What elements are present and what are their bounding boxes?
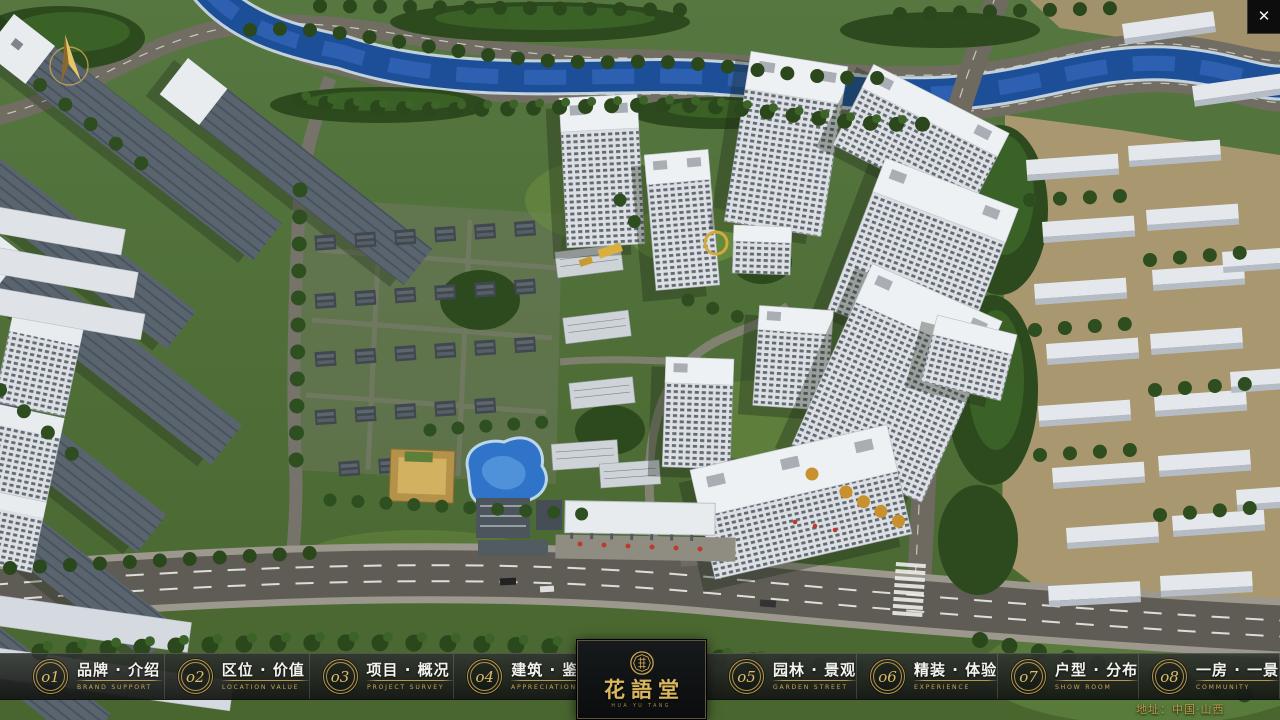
logo-panel[interactable]: 花語堂 HUA YU TANG <box>577 640 706 719</box>
site-plan-3d[interactable] <box>0 0 1280 720</box>
nav-item-floorplans[interactable]: o7 户型 · 分布SHOW ROOM <box>997 654 1138 699</box>
nav-group-right: o5 园林 · 景观GARDEN STREET o6 精装 · 体验EXPERI… <box>702 654 1280 699</box>
nav-label-zh: 一房 · 一景 <box>1196 662 1279 679</box>
compass-icon[interactable] <box>40 26 98 104</box>
nav-number-badge: o7 <box>1011 659 1046 694</box>
nav-label-en: GARDEN STREET <box>773 684 846 691</box>
nav-label-en: PROJECT SURVEY <box>367 684 443 691</box>
nav-label-en: APPRECIATION <box>511 684 584 691</box>
nav-number-badge: o4 <box>467 659 502 694</box>
nav-item-landscape[interactable]: o5 园林 · 景观GARDEN STREET <box>716 654 856 699</box>
gold-rule <box>773 680 856 681</box>
nav-number-badge: o8 <box>1152 659 1187 694</box>
nav-label-zh: 项目 · 概况 <box>367 662 454 679</box>
nav-label-en: EXPERIENCE <box>914 684 987 691</box>
nav-group-left: o1 品牌 · 介绍BRAND SUPPORT o2 区位 · 价值LOCATI… <box>0 654 598 699</box>
nav-number: o6 <box>878 668 897 686</box>
nav-label-zh: 区位 · 价值 <box>222 662 309 679</box>
nav-number: o1 <box>41 668 60 686</box>
gold-rule <box>222 680 309 681</box>
gold-rule <box>914 680 997 681</box>
nav-label-zh: 户型 · 分布 <box>1055 662 1138 679</box>
nav-number: o7 <box>1019 668 1038 686</box>
nav-item-location-value[interactable]: o2 区位 · 价值LOCATION VALUE <box>164 654 309 699</box>
nav-number: o3 <box>331 668 350 686</box>
nav-number-badge: o1 <box>33 659 68 694</box>
nav-item-room-view[interactable]: o8 一房 · 一景COMMUNITY <box>1138 654 1279 699</box>
nav-label-en: LOCATION VALUE <box>222 684 298 691</box>
nav-number: o5 <box>737 668 756 686</box>
logo-title: 花語堂 <box>598 678 685 701</box>
nav-label-zh: 园林 · 景观 <box>773 662 856 679</box>
gold-rule <box>1196 680 1279 681</box>
logo-seal-icon <box>629 650 655 676</box>
nav-number-badge: o2 <box>178 659 213 694</box>
gold-rule <box>1055 680 1138 681</box>
nav-number-badge: o5 <box>729 659 764 694</box>
nav-label-en: BRAND SUPPORT <box>77 684 152 691</box>
close-button[interactable]: ✕ <box>1247 0 1280 34</box>
gold-rule <box>367 680 454 681</box>
nav-item-interior-experience[interactable]: o6 精装 · 体验EXPERIENCE <box>856 654 997 699</box>
presentation-viewport: ✕ o1 品牌 · 介绍BRAND SUPPORT o2 区位 · 价值LOCA… <box>0 0 1280 720</box>
gold-rule <box>77 680 162 681</box>
nav-item-project-overview[interactable]: o3 项目 · 概况PROJECT SURVEY <box>309 654 454 699</box>
nav-number: o4 <box>475 668 494 686</box>
logo-subtitle: HUA YU TANG <box>612 704 671 709</box>
nav-number-badge: o6 <box>870 659 905 694</box>
nav-label-en: SHOW ROOM <box>1055 684 1128 691</box>
nav-label-zh: 品牌 · 介绍 <box>77 662 162 679</box>
address-label: 地址：中国·山西 <box>1136 701 1225 717</box>
nav-label-en: COMMUNITY <box>1196 684 1269 691</box>
nav-number-badge: o3 <box>323 659 358 694</box>
nav-number: o8 <box>1160 668 1179 686</box>
nav-label-zh: 精装 · 体验 <box>914 662 997 679</box>
nav-number: o2 <box>186 668 205 686</box>
nav-item-brand-intro[interactable]: o1 品牌 · 介绍BRAND SUPPORT <box>20 654 164 699</box>
